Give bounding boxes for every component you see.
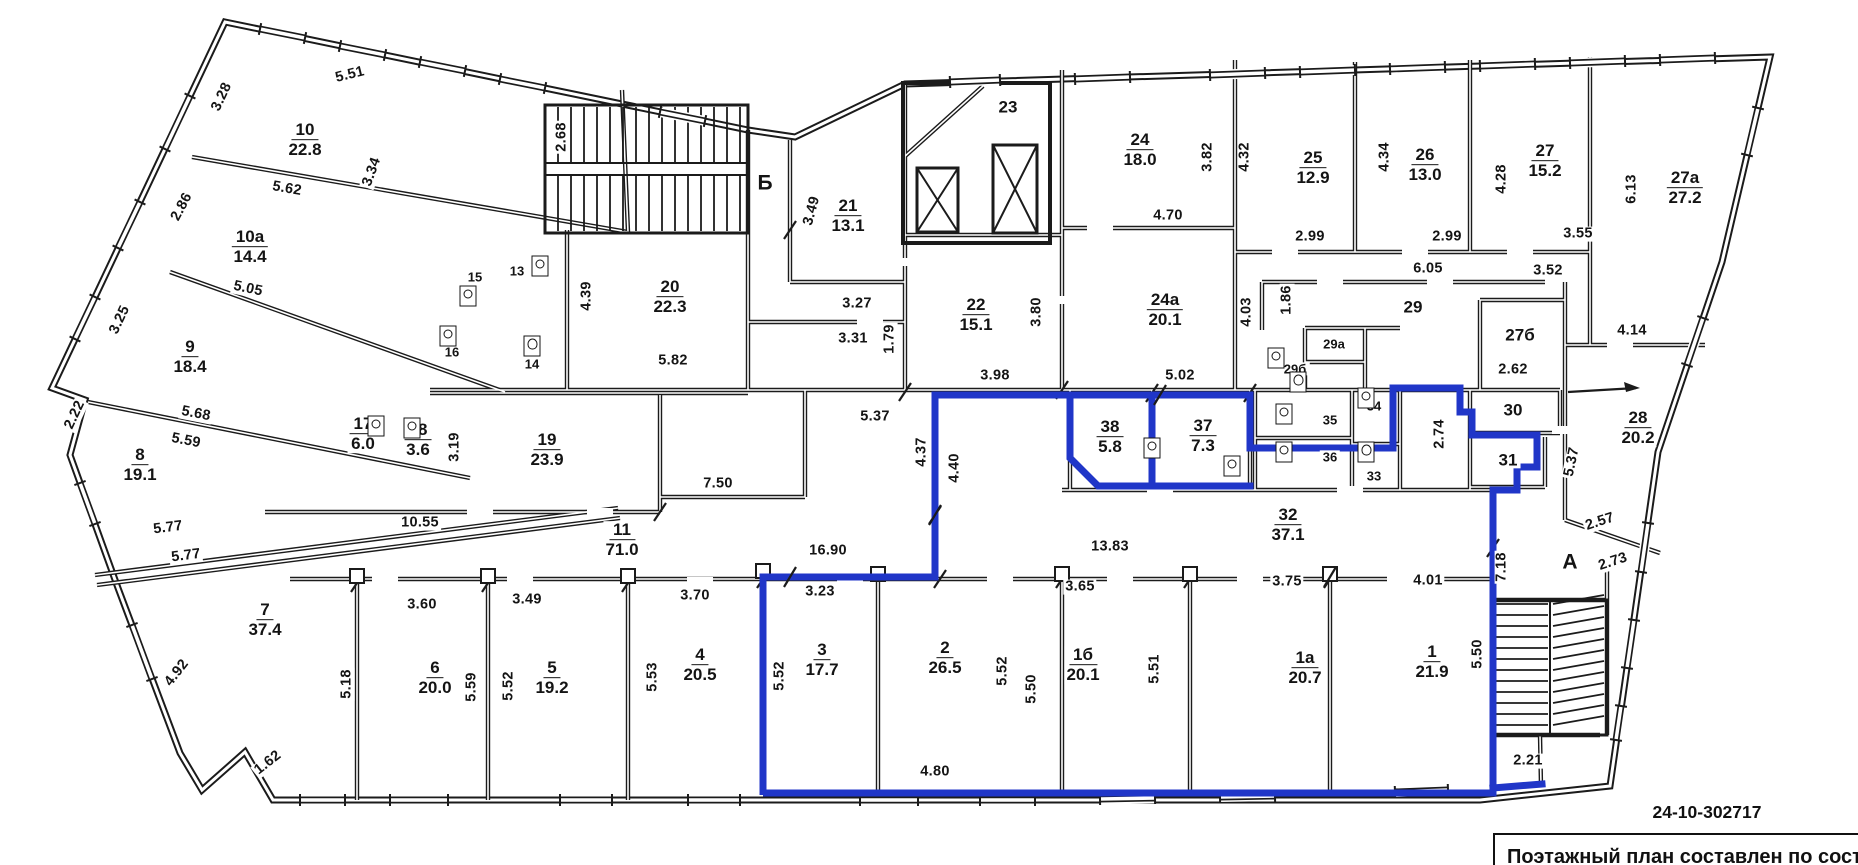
room-label-6: 620.0 (416, 659, 453, 697)
dimension-label: 3.55 (1561, 227, 1594, 242)
room-label-11: 1171.0 (603, 521, 640, 559)
sink-icon (1144, 438, 1161, 459)
room-label-35: 35 (1320, 413, 1340, 426)
room-label-14: 14 (522, 357, 542, 370)
room-label-28: 2820.2 (1619, 409, 1656, 447)
dimension-label: 1.62 (250, 747, 285, 779)
room-label-15: 15 (465, 270, 485, 283)
room-label-20: 2022.3 (651, 278, 688, 316)
dimension-label: 2.74 (1433, 417, 1448, 450)
dimension-label: 3.34 (359, 154, 384, 190)
dimension-label: 5.68 (178, 404, 214, 425)
dimension-label: 16.90 (807, 544, 849, 559)
dimension-label: 6.13 (1625, 172, 1640, 205)
dimension-label: 3.82 (1201, 140, 1216, 173)
sink-icon (1358, 388, 1375, 409)
dimension-label: 2.22 (61, 397, 89, 434)
dimension-label: 2.99 (1430, 230, 1463, 245)
room-label-9: 918.4 (171, 338, 208, 376)
room-label-4: 420.5 (681, 646, 718, 684)
dimension-label: 2.62 (1496, 363, 1529, 378)
dimension-label: 3.70 (678, 589, 711, 604)
room-label-8: 819.1 (121, 446, 158, 484)
room-label-1б: 1б20.1 (1064, 646, 1101, 684)
dimension-label: 7.18 (1495, 550, 1510, 583)
room-label-29: 29 (1401, 298, 1426, 315)
sink-icon (532, 256, 549, 277)
dimension-label: 7.50 (701, 477, 734, 492)
room-label-23: 23 (996, 98, 1021, 115)
room-label-21: 2113.1 (829, 197, 866, 235)
dimension-label: 5.50 (1471, 637, 1486, 670)
dimension-label: 5.05 (230, 278, 266, 299)
room-label-33: 33 (1364, 469, 1384, 482)
dimension-label: 3.60 (405, 598, 438, 613)
dimension-label: 4.80 (918, 765, 951, 780)
room-label-3: 317.7 (803, 641, 840, 679)
dimension-label: 3.25 (106, 302, 134, 339)
room-label-38: 385.8 (1095, 418, 1126, 456)
toilet-icon (524, 336, 541, 357)
dimension-label: 5.53 (646, 660, 661, 693)
note-text: Поэтажный план составлен по состоянию на (1507, 846, 1858, 865)
dimension-label: 1.86 (1280, 283, 1295, 316)
toilet-icon (1358, 442, 1375, 463)
floorplan-page: 1022.810а14.4918.4819.1737.4620.0519.242… (0, 0, 1858, 865)
room-label-5: 519.2 (533, 659, 570, 697)
room-label-37: 377.3 (1188, 417, 1219, 455)
dimension-label: 3.23 (803, 585, 836, 600)
sink-icon (1268, 348, 1285, 369)
dimension-label: 5.62 (269, 179, 304, 199)
dimension-label: 5.77 (151, 519, 186, 538)
dimension-label: 4.28 (1495, 162, 1510, 195)
sink-icon (404, 418, 421, 439)
sink-icon (1224, 456, 1241, 477)
room-label-27: 2715.2 (1526, 142, 1563, 180)
dimension-label: 5.77 (169, 547, 204, 566)
dimension-label: 4.92 (161, 655, 193, 690)
dimension-label: 5.51 (332, 64, 368, 86)
room-label-22: 2215.1 (957, 296, 994, 334)
note-box: Поэтажный план составлен по состоянию на (1493, 833, 1858, 865)
dimension-label: 5.51 (1148, 652, 1163, 685)
room-label-7: 737.4 (246, 601, 283, 639)
dimension-label: 2.99 (1293, 230, 1326, 245)
dimension-label: 5.37 (858, 410, 891, 425)
dimension-label: 5.18 (340, 667, 355, 700)
dimension-label: 4.40 (948, 451, 963, 484)
dimension-label: 3.52 (1531, 264, 1564, 279)
dimension-label: 6.05 (1411, 262, 1444, 277)
dimension-label: 3.49 (510, 593, 543, 608)
room-label-2: 226.5 (926, 639, 963, 677)
room-label-1а: 1а20.7 (1286, 649, 1323, 687)
dimension-label: 5.82 (656, 354, 689, 369)
dimension-label: 5.52 (773, 659, 788, 692)
dimension-label: 3.28 (208, 79, 236, 116)
sink-icon (1276, 404, 1293, 425)
dimension-label: 5.52 (502, 669, 517, 702)
dimension-label: 3.31 (836, 332, 869, 347)
toilet-icon (1290, 372, 1307, 393)
sink-icon (1276, 442, 1293, 463)
plan-number: 24-10-302717 (1612, 802, 1802, 823)
room-label-26: 2613.0 (1406, 146, 1443, 184)
dimension-label: 3.98 (978, 369, 1011, 384)
dimension-label: 13.83 (1089, 540, 1131, 555)
dimension-label: 3.49 (801, 193, 824, 229)
room-label-10а: 10а14.4 (230, 228, 270, 266)
dimension-label: 4.32 (1238, 140, 1253, 173)
room-label-30: 30 (1501, 401, 1526, 418)
dimension-label: 2.73 (1595, 550, 1631, 574)
dimension-label: 3.19 (448, 430, 463, 463)
dimension-label: 3.80 (1030, 295, 1045, 328)
room-label-10: 1022.8 (286, 121, 323, 159)
dimension-label: 4.39 (580, 279, 595, 312)
room-label-32: 3237.1 (1269, 506, 1306, 544)
dimension-label: 5.37 (1561, 444, 1582, 480)
room-label-27а: 27а27.2 (1665, 169, 1705, 207)
dimension-label: 2.68 (555, 120, 570, 153)
stairwell-letter-А: А (1560, 551, 1579, 572)
dimension-label: 4.70 (1151, 209, 1184, 224)
room-label-29а: 29а (1320, 337, 1348, 350)
dimension-label: 5.52 (996, 654, 1011, 687)
dimension-label: 3.27 (840, 297, 873, 312)
room-label-24: 2418.0 (1121, 131, 1158, 169)
room-label-25: 2512.9 (1294, 149, 1331, 187)
room-label-24а: 24а20.1 (1145, 291, 1185, 329)
room-label-27б: 27б (1502, 326, 1537, 343)
sink-icon (440, 326, 457, 347)
sink-icon (460, 286, 477, 307)
dimension-label: 3.75 (1270, 575, 1303, 590)
dimension-label: 4.03 (1240, 295, 1255, 328)
room-label-13: 13 (507, 264, 527, 277)
label-layer: 1022.810а14.4918.4819.1737.4620.0519.242… (0, 0, 1858, 865)
dimension-label: 4.37 (915, 435, 930, 468)
room-label-19: 1923.9 (528, 431, 565, 469)
dimension-label: 10.55 (399, 516, 441, 531)
dimension-label: 1.79 (883, 322, 898, 355)
room-label-16: 16 (442, 345, 462, 358)
dimension-label: 2.21 (1511, 754, 1544, 769)
dimension-label: 2.86 (168, 189, 197, 225)
dimension-label: 4.01 (1411, 574, 1444, 589)
room-label-36: 36 (1320, 450, 1340, 463)
dimension-label: 5.59 (168, 431, 204, 452)
dimension-label: 4.34 (1378, 140, 1393, 173)
stairwell-letter-Б: Б (755, 172, 774, 193)
dimension-label: 2.57 (1582, 510, 1618, 534)
dimension-label: 5.59 (465, 670, 480, 703)
room-label-31: 31 (1496, 451, 1521, 468)
dimension-label: 4.14 (1615, 324, 1648, 339)
dimension-label: 5.02 (1163, 369, 1196, 384)
dimension-label: 5.50 (1025, 672, 1040, 705)
room-label-1: 121.9 (1413, 643, 1450, 681)
dimension-label: 3.65 (1063, 580, 1096, 595)
sink-icon (368, 416, 385, 437)
